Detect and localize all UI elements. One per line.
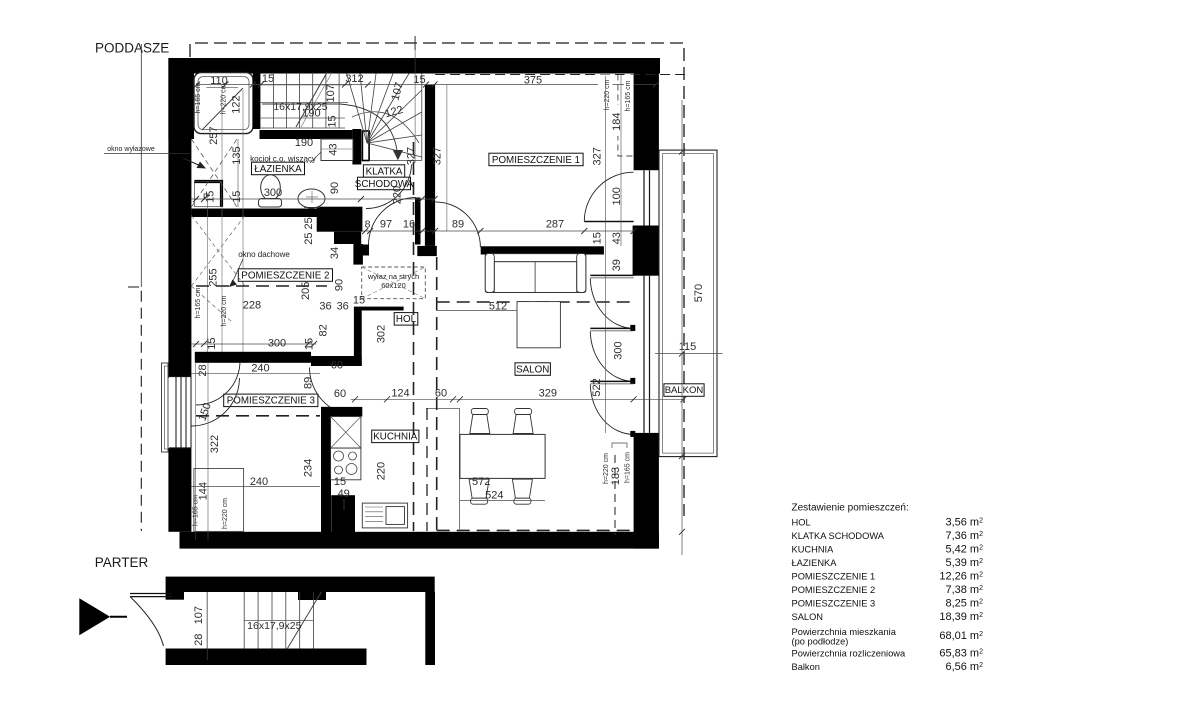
svg-text:60x120: 60x120: [381, 281, 406, 290]
svg-text:ŁAZIENKA: ŁAZIENKA: [792, 558, 838, 568]
svg-text:h=165 cm: h=165 cm: [195, 82, 202, 113]
svg-text:16: 16: [403, 219, 415, 231]
svg-text:8: 8: [365, 219, 371, 231]
svg-text:60: 60: [334, 388, 346, 400]
svg-text:329: 329: [539, 387, 557, 399]
svg-text:287: 287: [546, 219, 564, 231]
svg-text:327: 327: [432, 147, 444, 165]
svg-text:60: 60: [331, 360, 343, 372]
svg-text:90: 90: [329, 182, 341, 194]
svg-text:h=220 cm: h=220 cm: [221, 83, 228, 114]
svg-text:220: 220: [375, 462, 387, 480]
svg-text:107: 107: [193, 606, 205, 624]
svg-text:240: 240: [251, 363, 269, 375]
svg-text:PODDASZE: PODDASZE: [95, 41, 169, 56]
svg-text:SALON: SALON: [516, 364, 549, 375]
svg-text:KLATKA SCHODOWA: KLATKA SCHODOWA: [792, 531, 885, 541]
svg-text:300: 300: [264, 187, 282, 199]
svg-text:KLATKA: KLATKA: [366, 166, 403, 177]
svg-text:570: 570: [693, 284, 705, 302]
svg-text:SALON: SALON: [792, 612, 824, 622]
svg-text:375: 375: [524, 75, 542, 87]
svg-text:257: 257: [208, 126, 220, 144]
svg-text:240: 240: [250, 476, 268, 488]
svg-text:36: 36: [337, 301, 349, 313]
svg-text:28: 28: [197, 364, 209, 376]
svg-text:220: 220: [392, 186, 404, 204]
svg-text:25 25: 25 25: [303, 217, 315, 245]
svg-text:122: 122: [231, 95, 243, 113]
svg-text:524: 524: [485, 490, 503, 502]
svg-text:h=165 cm: h=165 cm: [625, 452, 632, 483]
svg-text:312: 312: [345, 73, 363, 85]
svg-text:300: 300: [268, 338, 286, 350]
svg-text:89: 89: [452, 219, 464, 231]
svg-text:15: 15: [304, 338, 316, 350]
svg-text:PARTER: PARTER: [95, 555, 149, 570]
svg-text:3,56 m2: 3,56 m2: [945, 517, 983, 529]
svg-text:h=220 cm: h=220 cm: [221, 295, 228, 326]
svg-text:15: 15: [334, 476, 346, 488]
svg-text:97: 97: [380, 219, 392, 231]
svg-text:HOL: HOL: [792, 518, 811, 528]
svg-text:h=165 cm: h=165 cm: [195, 287, 202, 318]
svg-text:okno wyłazowe: okno wyłazowe: [107, 146, 155, 153]
svg-text:43: 43: [611, 232, 623, 244]
svg-text:POMIESZCZENIE 3: POMIESZCZENIE 3: [227, 396, 316, 407]
svg-text:KUCHNIA: KUCHNIA: [373, 432, 418, 443]
svg-text:82: 82: [318, 324, 330, 336]
svg-text:Balkon: Balkon: [792, 662, 820, 672]
svg-text:60: 60: [435, 388, 447, 400]
svg-text:322: 322: [209, 435, 221, 453]
svg-text:15: 15: [205, 191, 217, 203]
svg-text:h=220 cm: h=220 cm: [604, 79, 611, 110]
svg-text:wyłaz na strych: wyłaz na strych: [367, 272, 419, 281]
svg-text:POMIESZCZENIE 1: POMIESZCZENIE 1: [492, 155, 580, 166]
svg-text:Powierzchnia rozliczeniowa: Powierzchnia rozliczeniowa: [792, 649, 907, 659]
svg-text:h=220 cm: h=220 cm: [222, 498, 229, 529]
svg-text:28: 28: [193, 634, 205, 646]
svg-text:124: 124: [391, 387, 409, 399]
svg-text:15: 15: [262, 73, 274, 85]
svg-text:okno dachowe: okno dachowe: [238, 250, 290, 259]
svg-text:115: 115: [679, 341, 697, 353]
svg-text:15: 15: [327, 115, 339, 127]
svg-text:KUCHNIA: KUCHNIA: [792, 545, 835, 555]
svg-text:228: 228: [243, 300, 261, 312]
svg-text:190: 190: [295, 137, 313, 149]
svg-text:15: 15: [231, 191, 243, 203]
svg-text:POMIESZCZENIE 2: POMIESZCZENIE 2: [792, 585, 876, 595]
svg-text:5,39 m2: 5,39 m2: [945, 557, 983, 569]
svg-text:302: 302: [375, 325, 387, 343]
svg-text:POMIESZCZENIE 1: POMIESZCZENIE 1: [792, 572, 876, 582]
svg-text:Powierzchnia mieszkania: Powierzchnia mieszkania: [792, 627, 897, 637]
svg-text:327: 327: [592, 147, 604, 165]
svg-text:572: 572: [472, 476, 490, 488]
svg-text:ŁAZIENKA: ŁAZIENKA: [254, 164, 302, 175]
svg-text:89: 89: [303, 377, 315, 389]
svg-text:BALKON: BALKON: [665, 385, 704, 396]
svg-text:135: 135: [231, 146, 243, 164]
svg-text:100: 100: [611, 187, 623, 205]
svg-text:h=165 cm: h=165 cm: [625, 80, 632, 111]
svg-text:12,26 m2: 12,26 m2: [939, 571, 983, 583]
svg-text:255: 255: [208, 268, 220, 286]
svg-text:90: 90: [333, 279, 345, 291]
svg-text:107: 107: [325, 84, 337, 102]
svg-text:7,36 m2: 7,36 m2: [945, 530, 983, 542]
svg-text:18,39 m2: 18,39 m2: [939, 611, 983, 623]
svg-text:h=165 cm: h=165 cm: [193, 495, 200, 526]
svg-text:15: 15: [206, 337, 218, 349]
svg-text:190: 190: [302, 108, 320, 120]
svg-text:SCHODOWA: SCHODOWA: [355, 179, 414, 190]
svg-text:6,56 m2: 6,56 m2: [945, 661, 983, 673]
svg-text:183: 183: [610, 467, 622, 485]
svg-text:7,38 m2: 7,38 m2: [945, 584, 983, 596]
svg-text:5,42 m2: 5,42 m2: [945, 544, 983, 556]
svg-text:65,83 m2: 65,83 m2: [939, 648, 983, 660]
svg-text:39: 39: [611, 259, 623, 271]
svg-text:36: 36: [319, 301, 331, 313]
svg-text:300: 300: [613, 341, 625, 359]
svg-text:68,01 m2: 68,01 m2: [939, 630, 983, 642]
svg-text:522: 522: [591, 378, 603, 396]
svg-text:8,25 m2: 8,25 m2: [945, 598, 983, 610]
svg-text:205: 205: [300, 282, 312, 300]
svg-text:15: 15: [592, 232, 604, 244]
svg-text:34: 34: [329, 247, 341, 259]
svg-text:327: 327: [405, 147, 417, 165]
svg-text:POMIESZCZENIE 2: POMIESZCZENIE 2: [241, 270, 329, 281]
svg-text:16x17,9x25: 16x17,9x25: [247, 620, 301, 632]
svg-text:43: 43: [328, 143, 340, 155]
svg-text:234: 234: [303, 459, 315, 477]
svg-text:49: 49: [338, 488, 350, 500]
svg-text:POMIESZCZENIE 3: POMIESZCZENIE 3: [792, 599, 876, 609]
svg-text:(po podłodze): (po podłodze): [792, 637, 849, 647]
svg-text:Zestawienie pomieszczeń:: Zestawienie pomieszczeń:: [792, 503, 909, 514]
svg-text:15: 15: [353, 294, 365, 306]
